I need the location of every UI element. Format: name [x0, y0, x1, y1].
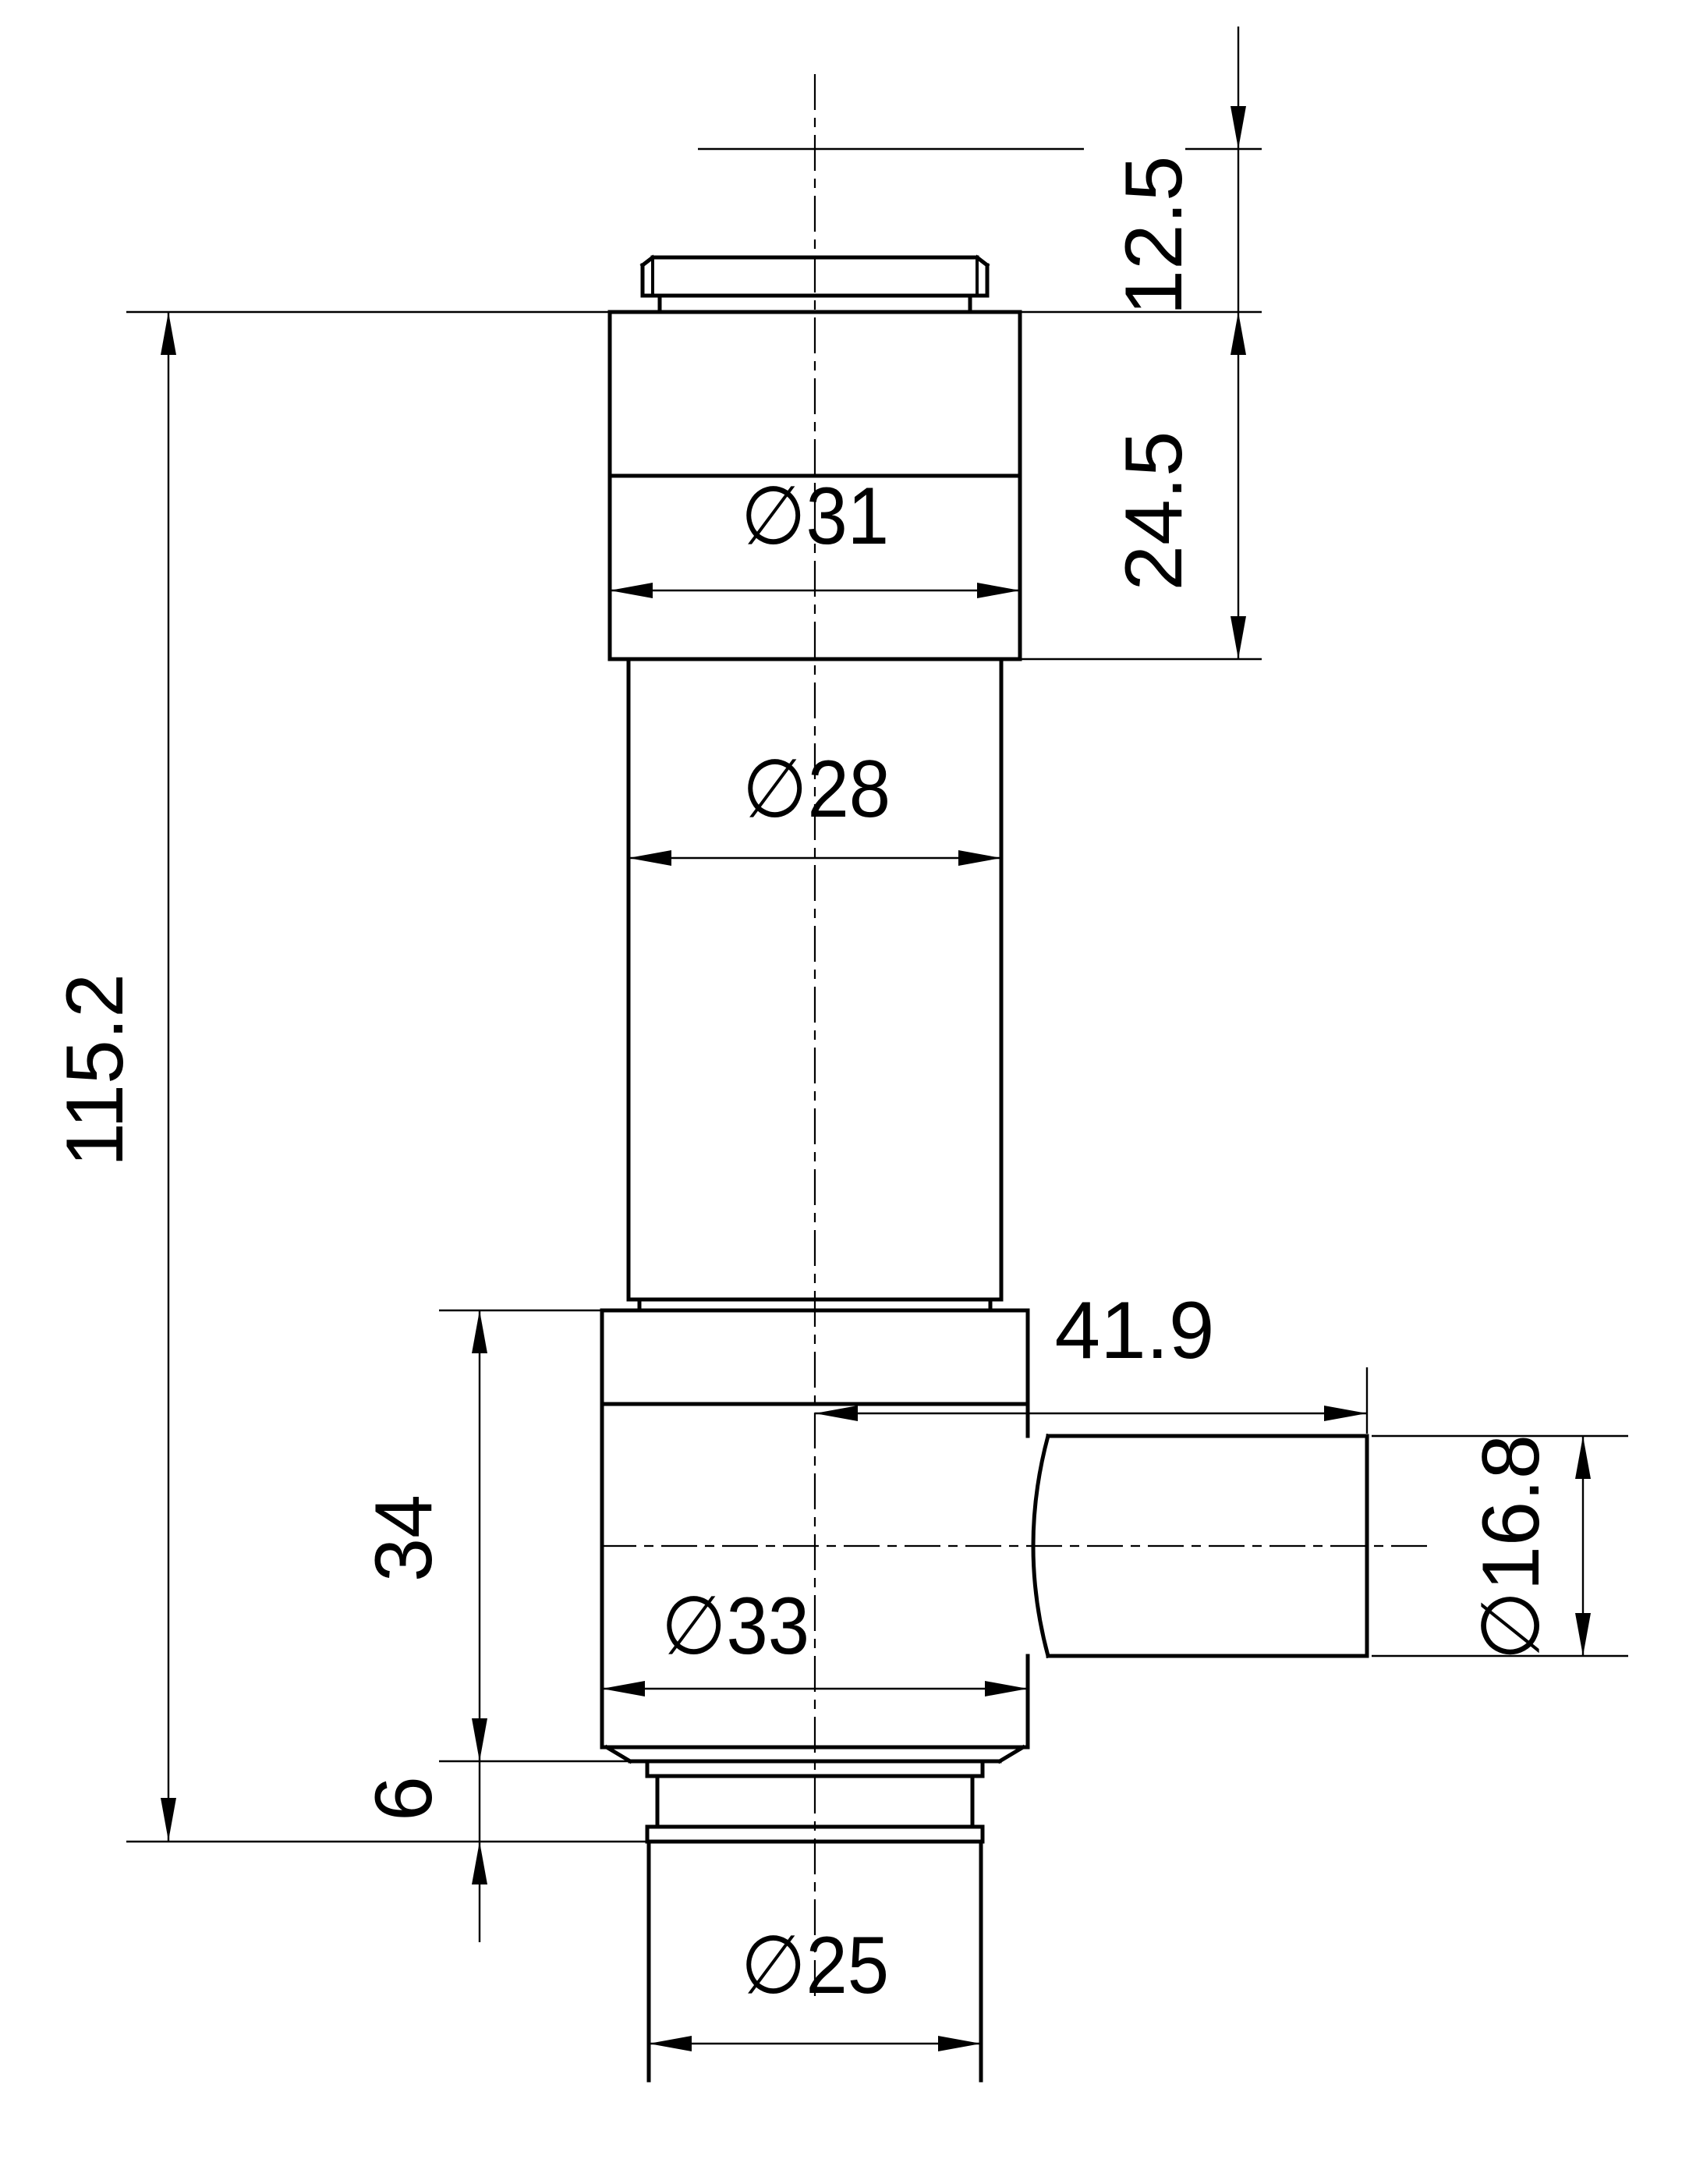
arrowhead-up [472, 1842, 487, 1884]
arrowhead-left [629, 850, 671, 866]
part-outline [602, 257, 1367, 2080]
dim-upper-dia-label: ∅31 [741, 471, 889, 562]
dim-groove-height-label: 6 [359, 1776, 449, 1821]
centerlines [600, 74, 1427, 1997]
arrowhead-right [938, 2036, 981, 2051]
dim-stem-dia-label: ∅28 [742, 744, 891, 835]
dim-port-dia-label: ∅16.8 [1466, 1434, 1556, 1661]
dim-left-chain: 34 6 [359, 1310, 629, 1942]
arrowhead-up [472, 1310, 487, 1353]
drawing-page: 115.2 12.5 24.5 ∅31 ∅28 41.9 [0, 0, 1682, 2184]
arrowhead-left [610, 583, 653, 598]
dim-outlet-dia: ∅25 [649, 1920, 981, 2051]
dim-upper-height-label: 24.5 [1109, 431, 1199, 591]
arrowhead-right [958, 850, 1001, 866]
arrowhead-left [815, 1406, 858, 1421]
dim-flange-height-label: 34 [359, 1494, 449, 1582]
dim-outlet-dia-label: ∅25 [741, 1920, 889, 2011]
arrowhead-left [649, 2036, 692, 2051]
dim-right-chain: 12.5 24.5 [698, 27, 1262, 659]
arrowhead-right [1324, 1406, 1367, 1421]
flange-right-chamfer [1000, 1747, 1023, 1761]
arrowhead-up [161, 312, 176, 355]
arrowhead-up [1231, 312, 1246, 355]
arrowhead-down [161, 1798, 176, 1841]
arrowhead-left [602, 1681, 645, 1696]
dim-flange-dia-label: ∅33 [661, 1581, 809, 1672]
arrowhead-right [977, 583, 1020, 598]
dim-port-length: 41.9 [815, 1285, 1367, 1434]
dim-total-height: 115.2 [50, 312, 646, 1842]
dim-cap-travel-label: 12.5 [1109, 156, 1199, 316]
arrowhead-down [472, 1718, 487, 1761]
arrowhead-down [1231, 616, 1246, 659]
arrowhead-down [1575, 1613, 1591, 1656]
arrowhead-down [1231, 106, 1246, 149]
flange-left-chamfer [607, 1747, 630, 1761]
dim-stem-dia: ∅28 [629, 744, 1001, 866]
dim-total-height-label: 115.2 [50, 973, 140, 1167]
dim-port-dia: ∅16.8 [1372, 1434, 1628, 1661]
arrowhead-up [1575, 1436, 1591, 1479]
arrowhead-right [985, 1681, 1028, 1696]
dim-port-length-label: 41.9 [1055, 1285, 1215, 1376]
technical-drawing: 115.2 12.5 24.5 ∅31 ∅28 41.9 [0, 0, 1682, 2184]
